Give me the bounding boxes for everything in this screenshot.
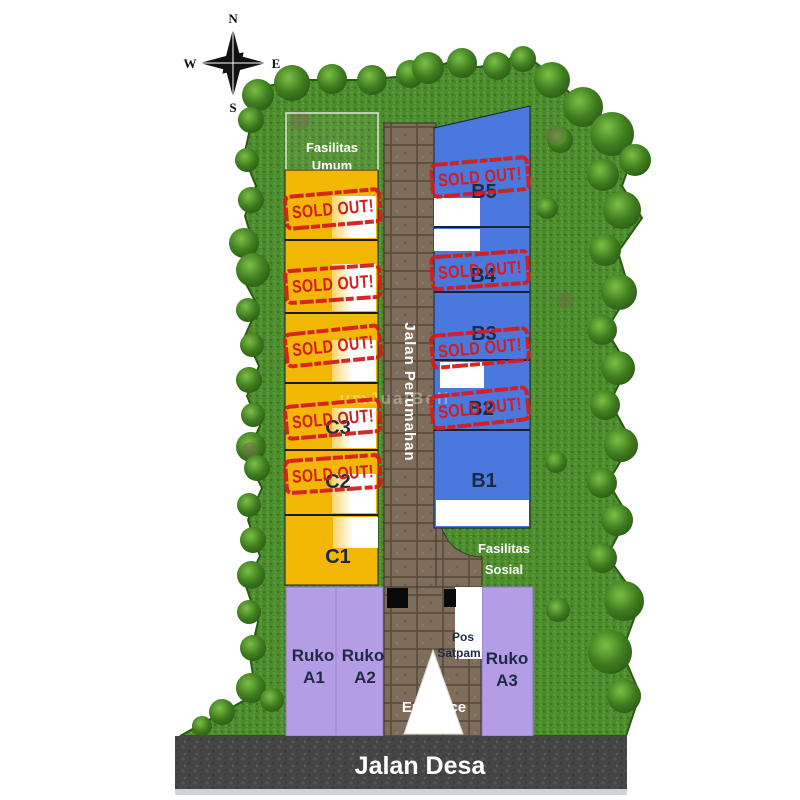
pos-satpam-label-line1: Pos [452, 630, 474, 644]
ruko-a3-label-line2: A3 [496, 671, 518, 690]
village-road: Jalan Desa [175, 736, 627, 795]
ruko-a1-label-line2: A1 [303, 668, 325, 687]
unit-label-b1: B1 [471, 470, 497, 492]
pos-satpam-label-line2: Satpam [437, 646, 480, 660]
siteplan-canvas: Fasilitas Umum Jalan Perumahan C3 C2 C1 [0, 0, 800, 800]
fasilitas-sosial-label-line2: Sosial [485, 562, 523, 577]
entrance-label: Entrance [402, 699, 466, 716]
ruko-a3-label-line1: Ruko [486, 649, 529, 668]
compass-n: N [228, 11, 238, 26]
ruko-a2-label-line1: Ruko [342, 646, 385, 665]
block-c: C3 C2 C1 [285, 170, 378, 585]
ruko-a2-label-line2: A2 [354, 668, 376, 687]
gate-pillar-left [387, 588, 408, 608]
fasilitas-umum-label-line1: Fasilitas [306, 140, 358, 155]
compass-s: S [229, 100, 236, 115]
compass-w: W [184, 56, 197, 71]
village-road-label: Jalan Desa [355, 752, 487, 780]
ruko-a1-label-line1: Ruko [292, 646, 335, 665]
siteplan-drawing: Fasilitas Umum Jalan Perumahan C3 C2 C1 [0, 0, 800, 800]
compass-e: E [272, 56, 281, 71]
gate-pillar-right [444, 589, 456, 607]
unit-label-c1: C1 [325, 546, 351, 568]
fasilitas-sosial-label-line1: Fasilitas [478, 541, 530, 556]
